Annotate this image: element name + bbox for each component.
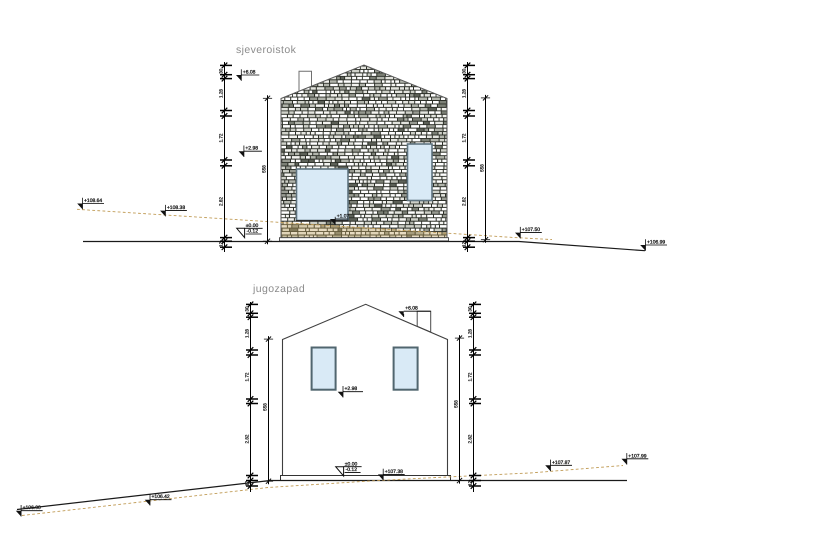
svg-text:+107.99: +107.99 <box>628 453 646 459</box>
svg-text:558: 558 <box>454 400 459 408</box>
svg-text:2.82: 2.82 <box>245 434 250 443</box>
svg-text:1.28: 1.28 <box>245 329 250 338</box>
svg-text:12: 12 <box>462 241 467 247</box>
svg-text:1.72: 1.72 <box>468 372 473 381</box>
svg-text:+107.87: +107.87 <box>552 460 570 466</box>
svg-text:30: 30 <box>245 306 250 312</box>
svg-text:30: 30 <box>462 68 467 74</box>
svg-text:+2.98: +2.98 <box>245 146 258 152</box>
svg-text:558: 558 <box>263 403 268 411</box>
svg-text:+2.98: +2.98 <box>345 386 358 392</box>
svg-text:2.82: 2.82 <box>462 197 467 206</box>
svg-text:+1.07: +1.07 <box>337 214 350 220</box>
svg-text:12: 12 <box>245 480 250 486</box>
svg-text:+106.00: +106.00 <box>23 505 41 511</box>
svg-text:12: 12 <box>468 480 473 486</box>
svg-text:558: 558 <box>262 165 267 173</box>
svg-text:+6.08: +6.08 <box>405 306 418 312</box>
svg-text:sjeveroistok: sjeveroistok <box>236 44 297 56</box>
svg-text:2.82: 2.82 <box>219 197 224 206</box>
svg-text:+107.38: +107.38 <box>385 469 403 475</box>
svg-text:+108.38: +108.38 <box>167 205 185 211</box>
svg-text:30: 30 <box>219 68 224 74</box>
svg-text:1.28: 1.28 <box>219 89 224 98</box>
svg-text:30: 30 <box>468 306 473 312</box>
svg-text:1.72: 1.72 <box>219 133 224 142</box>
svg-text:-0.12: -0.12 <box>247 229 259 235</box>
svg-text:558: 558 <box>480 164 485 172</box>
svg-text:1.28: 1.28 <box>462 89 467 98</box>
svg-text:+6.08: +6.08 <box>243 70 256 76</box>
svg-text:+108.64: +108.64 <box>84 198 102 204</box>
svg-text:1.72: 1.72 <box>245 372 250 381</box>
svg-text:-0.12: -0.12 <box>346 467 358 473</box>
svg-text:1.28: 1.28 <box>468 329 473 338</box>
svg-text:jugozapad: jugozapad <box>252 283 305 295</box>
svg-text:2.82: 2.82 <box>468 434 473 443</box>
svg-text:+107.50: +107.50 <box>522 227 540 233</box>
svg-text:+106.99: +106.99 <box>647 240 665 246</box>
svg-text:12: 12 <box>219 241 224 247</box>
svg-text:+106.42: +106.42 <box>152 494 170 500</box>
svg-text:1.72: 1.72 <box>462 133 467 142</box>
